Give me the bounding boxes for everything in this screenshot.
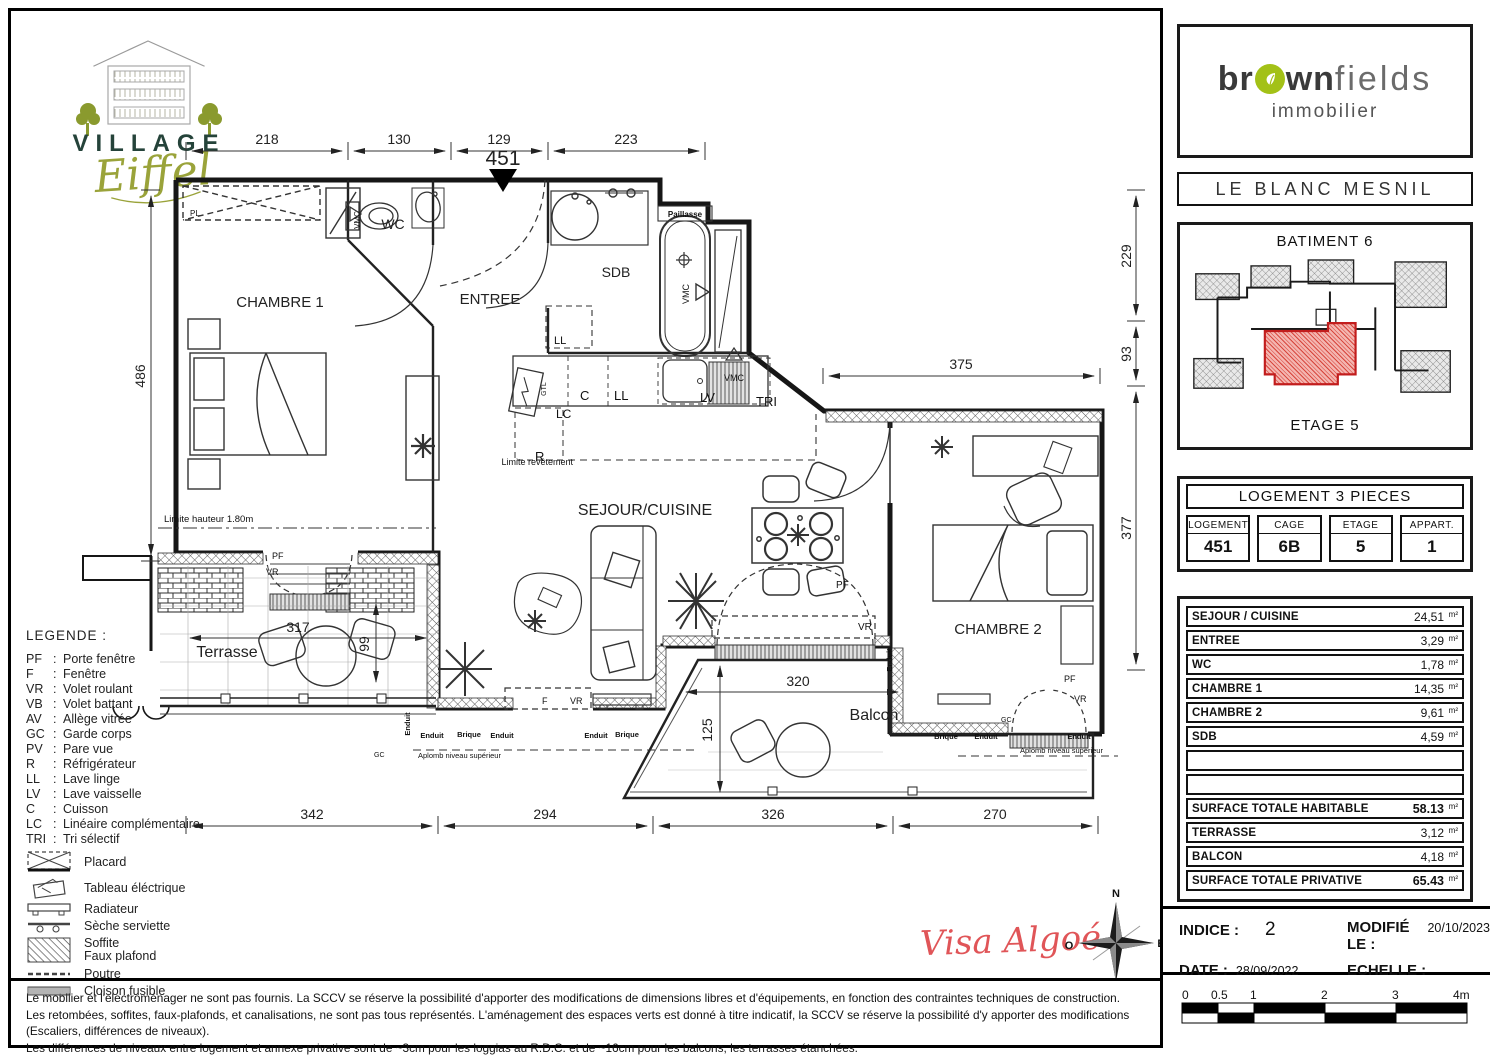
dining-set	[752, 460, 848, 597]
area-row: SDB4,59m²	[1186, 726, 1464, 747]
scale-tick-3: 3	[1392, 988, 1399, 1002]
legend-title: LEGENDE :	[26, 628, 261, 643]
ann-pf: PF	[272, 551, 284, 561]
scale-bar: 0 0.5 1 2 3 4m	[1177, 987, 1477, 1037]
pillow	[194, 408, 224, 450]
ann-lc: LC	[556, 407, 572, 421]
ann-enduit: Enduit	[974, 732, 998, 741]
nightstand	[188, 319, 220, 349]
ann-enduit: Enduit	[403, 712, 412, 736]
book	[1044, 441, 1072, 473]
area-row: CHAMBRE 114,35m²	[1186, 678, 1464, 699]
compass-o: O	[1065, 940, 1074, 952]
ann-gtl: GTL	[541, 382, 548, 396]
indice-value: 2	[1265, 919, 1276, 941]
legend-item: TRI:Tri sélectif	[26, 832, 261, 847]
dim-right-1: 229	[1118, 244, 1134, 268]
unit-number: 451	[485, 147, 520, 170]
area-row: BALCON4,18m²	[1186, 846, 1464, 867]
legend-item: LV:Lave vaisselle	[26, 787, 261, 802]
dining-chair	[804, 460, 848, 499]
balcony-table	[776, 723, 830, 777]
dim-top-3: 129	[487, 131, 511, 147]
etage-label: ETAGE 5	[1180, 417, 1470, 434]
legend-symbol-cloison: Cloison fusible	[26, 984, 261, 998]
dim-375: 375	[949, 356, 973, 372]
lave-linge-box	[546, 306, 592, 348]
brownfields-subtitle: immobilier	[1272, 101, 1379, 123]
vmc-triangle	[696, 284, 709, 300]
bed-chambre1	[190, 353, 326, 455]
ann-brique: Brique	[457, 730, 481, 739]
unit-cell-logement: LOGEMENT451	[1186, 515, 1250, 562]
legend-symbol-poutre: Poutre	[26, 967, 261, 981]
ann-brique: Brique	[934, 732, 958, 741]
ann-ll: LL	[554, 335, 566, 347]
ann-vr: VR	[1074, 694, 1087, 704]
ann-paillasse: Paillasse	[668, 210, 703, 219]
legend-item: LL:Lave linge	[26, 772, 261, 787]
sofa-pillow	[603, 641, 635, 673]
dim-bottom-3: 326	[761, 806, 785, 822]
dining-chair	[763, 569, 799, 595]
legend-item: GC:Garde corps	[26, 727, 261, 742]
room-labels: CHAMBRE 1 WC ENTREE SDB SEJOUR/CUISINE C…	[196, 147, 1041, 724]
chambre2-door-arc	[814, 423, 890, 501]
legend-symbol-soffite: SoffiteFaux plafond	[26, 936, 261, 964]
door-arcs	[266, 180, 1086, 732]
dim-top-1: 218	[255, 131, 279, 147]
ann-gc: GC	[374, 752, 385, 759]
scale-tick-1: 1	[1250, 988, 1257, 1002]
dim-bottom-2: 294	[533, 806, 557, 822]
disclaimer-line: Les retombées, soffites, faux-plafonds, …	[26, 1007, 1142, 1040]
cloison-fusible-icon	[26, 985, 72, 997]
dim-right-3: 377	[1118, 516, 1134, 540]
large-plant-icon	[438, 642, 492, 696]
legend-item: LC:Linéaire complémentaire	[26, 817, 261, 832]
dim-bottom-1: 342	[300, 806, 324, 822]
room-sejour: SEJOUR/CUISINE	[578, 502, 712, 519]
revision-block: INDICE :2 MODIFIÉ LE :20/10/2023 DATE :2…	[1163, 906, 1490, 975]
tableau-electrique-icon	[26, 877, 72, 899]
pillow	[1047, 531, 1087, 595]
building-key-plan	[1182, 252, 1468, 410]
limite-revetement-line	[568, 414, 816, 460]
pf-balcon-arcs	[717, 564, 873, 645]
compass-n: N	[1112, 888, 1120, 900]
legend-item: R:Réfrigérateur	[26, 757, 261, 772]
dim-320: 320	[786, 673, 810, 689]
dim-right-2: 93	[1118, 346, 1134, 362]
area-row-blank	[1186, 750, 1464, 771]
terrasse-table	[296, 626, 356, 686]
ann-gc: GC	[1001, 717, 1012, 724]
area-row-blank	[1186, 774, 1464, 795]
leaf-icon	[1255, 64, 1285, 94]
room-sdb: SDB	[602, 264, 631, 280]
dim-125: 125	[699, 718, 715, 742]
seche-serviette-icon	[26, 920, 72, 933]
balcony	[624, 660, 1093, 798]
legend: LEGENDE : PF:Porte fenêtre F:Fenêtre VR:…	[26, 628, 261, 998]
poutre-icon	[26, 969, 72, 979]
dim-bottom-4: 270	[983, 806, 1007, 822]
scale-bar-section: 0 0.5 1 2 3 4m	[1163, 975, 1490, 1048]
ann-ll: LL	[614, 388, 628, 403]
entrance-door-arc	[440, 180, 545, 286]
ann-f: F	[542, 696, 548, 706]
ann-vr: VR	[858, 622, 872, 633]
area-row: WC1,78m²	[1186, 654, 1464, 675]
kitchen	[509, 306, 816, 460]
bed-chambre2	[933, 525, 1093, 601]
large-plant-icon	[668, 573, 724, 629]
ann-aplomb: Aplomb niveau supérieur	[1020, 746, 1103, 755]
dim-317: 317	[286, 619, 310, 635]
modified-value: 20/10/2023	[1427, 921, 1490, 935]
shelf	[1061, 606, 1093, 664]
ann-tri: TRI	[756, 394, 777, 409]
building-locator-box: BATIMENT 6	[1177, 222, 1473, 450]
room-entree: ENTREE	[460, 291, 521, 308]
ann-vmc: VMC	[353, 211, 362, 229]
visa-signature: Visa Algoé	[919, 918, 1101, 964]
scale-tick-05: 0.5	[1211, 988, 1228, 1002]
legend-item: F:Fenêtre	[26, 667, 261, 682]
ann-vr: VR	[266, 567, 279, 577]
bench	[938, 694, 990, 704]
ann-c: C	[580, 388, 589, 403]
dim-top-2: 130	[387, 131, 411, 147]
ann-r: R	[535, 449, 544, 464]
dim-99: 99	[356, 636, 372, 652]
area-row: SEJOUR / CUISINE24,51m²	[1186, 606, 1464, 627]
room-chambre2: CHAMBRE 2	[954, 621, 1042, 638]
scale-tick-4m: 4m	[1453, 988, 1470, 1002]
nightstand	[188, 459, 220, 489]
title-block-panel: brwnfields immobilier LE BLANC MESNIL BA…	[1160, 8, 1490, 1048]
lave-vaisselle	[709, 362, 749, 404]
chambre2-furniture	[931, 436, 1098, 704]
dim-top-4: 223	[614, 131, 638, 147]
radiateur-icon	[26, 902, 72, 916]
highlighted-apartment	[1265, 323, 1356, 384]
area-row: ENTREE3,29m²	[1186, 630, 1464, 651]
ann-limite-hauteur: Limite hauteur 1.80m	[164, 514, 253, 525]
sejour-furniture	[438, 526, 724, 709]
soffite-icon	[26, 936, 72, 964]
room-chambre1: CHAMBRE 1	[236, 294, 324, 311]
ann-enduit: Enduit	[1067, 732, 1091, 741]
room-wc: WC	[381, 216, 404, 232]
ann-enduit: Enduit	[490, 731, 514, 740]
ann-pl: PL	[190, 209, 200, 218]
unit-title: LOGEMENT 3 PIECES	[1186, 484, 1464, 509]
pillow	[194, 358, 224, 400]
brownfields-logo-box: brwnfields immobilier	[1177, 24, 1473, 158]
tableau-electrique	[509, 368, 544, 416]
ann-enduit: Enduit	[420, 731, 444, 740]
sofa	[591, 526, 656, 680]
duvet	[257, 353, 308, 455]
plant-icon	[524, 610, 546, 632]
legend-item: AV:Allège vitrée	[26, 712, 261, 727]
legend-symbol-placard: Placard	[26, 850, 261, 874]
ann-pf: PF	[1064, 674, 1076, 684]
plant-icon	[931, 436, 953, 458]
ann-vr: VR	[570, 696, 583, 706]
area-row-total: SURFACE TOTALE PRIVATIVE65.43m²	[1186, 870, 1464, 891]
floorplan-sheet: VILLAGE Eiffel	[0, 0, 1498, 1056]
outer-walls	[176, 180, 1102, 734]
desk	[973, 436, 1098, 476]
legend-symbol-seche: Sèche serviette	[26, 919, 261, 933]
legend-item: VB:Volet battant	[26, 697, 261, 712]
indice-label: INDICE :	[1179, 922, 1239, 939]
legend-item: VR:Volet roulant	[26, 682, 261, 697]
modified-label: MODIFIÉ LE :	[1347, 919, 1419, 953]
ann-vmc: VMC	[681, 284, 691, 305]
vr-balcon-box	[712, 616, 875, 638]
ann-enduit: Enduit	[584, 731, 608, 740]
ann-pf: PF	[836, 580, 849, 591]
sdb-counter	[551, 191, 648, 245]
area-row: TERRASSE3,12m²	[1186, 822, 1464, 843]
room-balcon: Balcon	[850, 707, 899, 724]
unit-id-box: LOGEMENT 3 PIECES LOGEMENT451 CAGE6B ETA…	[1177, 476, 1473, 572]
sdb-fixtures	[551, 189, 741, 356]
placard-icon	[26, 850, 72, 874]
areas-table: SEJOUR / CUISINE24,51m² ENTREE3,29m² WC1…	[1177, 596, 1473, 902]
legend-item: PF:Porte fenêtre	[26, 652, 261, 667]
legend-symbol-tableau: Tableau éléctrique	[26, 877, 261, 899]
disclaimer-line: Les différences de niveaux entre logemen…	[26, 1040, 1142, 1056]
scale-tick-2: 2	[1321, 988, 1328, 1002]
balcony-chair	[728, 717, 778, 765]
dining-chair	[763, 476, 799, 502]
ann-vmc: VMC	[724, 373, 745, 383]
unit-cell-cage: CAGE6B	[1257, 515, 1321, 562]
area-row-total: SURFACE TOTALE HABITABLE58.13m²	[1186, 798, 1464, 819]
brownfields-wordmark: brwnfields	[1218, 60, 1433, 99]
scale-tick-0: 0	[1182, 988, 1189, 1002]
ann-lv: LV	[700, 390, 715, 405]
wc-sink	[413, 190, 444, 225]
unit-cell-etage: ETAGE5	[1329, 515, 1393, 562]
project-city-box: LE BLANC MESNIL	[1177, 172, 1473, 206]
batiment-label: BATIMENT 6	[1180, 233, 1470, 250]
interior-walls	[348, 180, 890, 553]
legend-symbol-radiateur: Radiateur	[26, 902, 261, 916]
plant-icon	[787, 524, 809, 546]
ann-brique: Brique	[615, 730, 639, 739]
plant-icon	[411, 434, 435, 458]
legend-item: PV:Pare vue	[26, 742, 261, 757]
ann-aplomb: Aplomb niveau supérieur	[418, 751, 501, 760]
terrasse-chair	[347, 617, 397, 661]
area-row: CHAMBRE 29,61m²	[1186, 702, 1464, 723]
legend-item: C:Cuisson	[26, 802, 261, 817]
dim-left: 486	[132, 364, 148, 388]
ann-enduit: Enduit	[885, 648, 894, 672]
unit-cell-appart: APPART.1	[1400, 515, 1464, 562]
sofa-pillow	[604, 552, 639, 587]
